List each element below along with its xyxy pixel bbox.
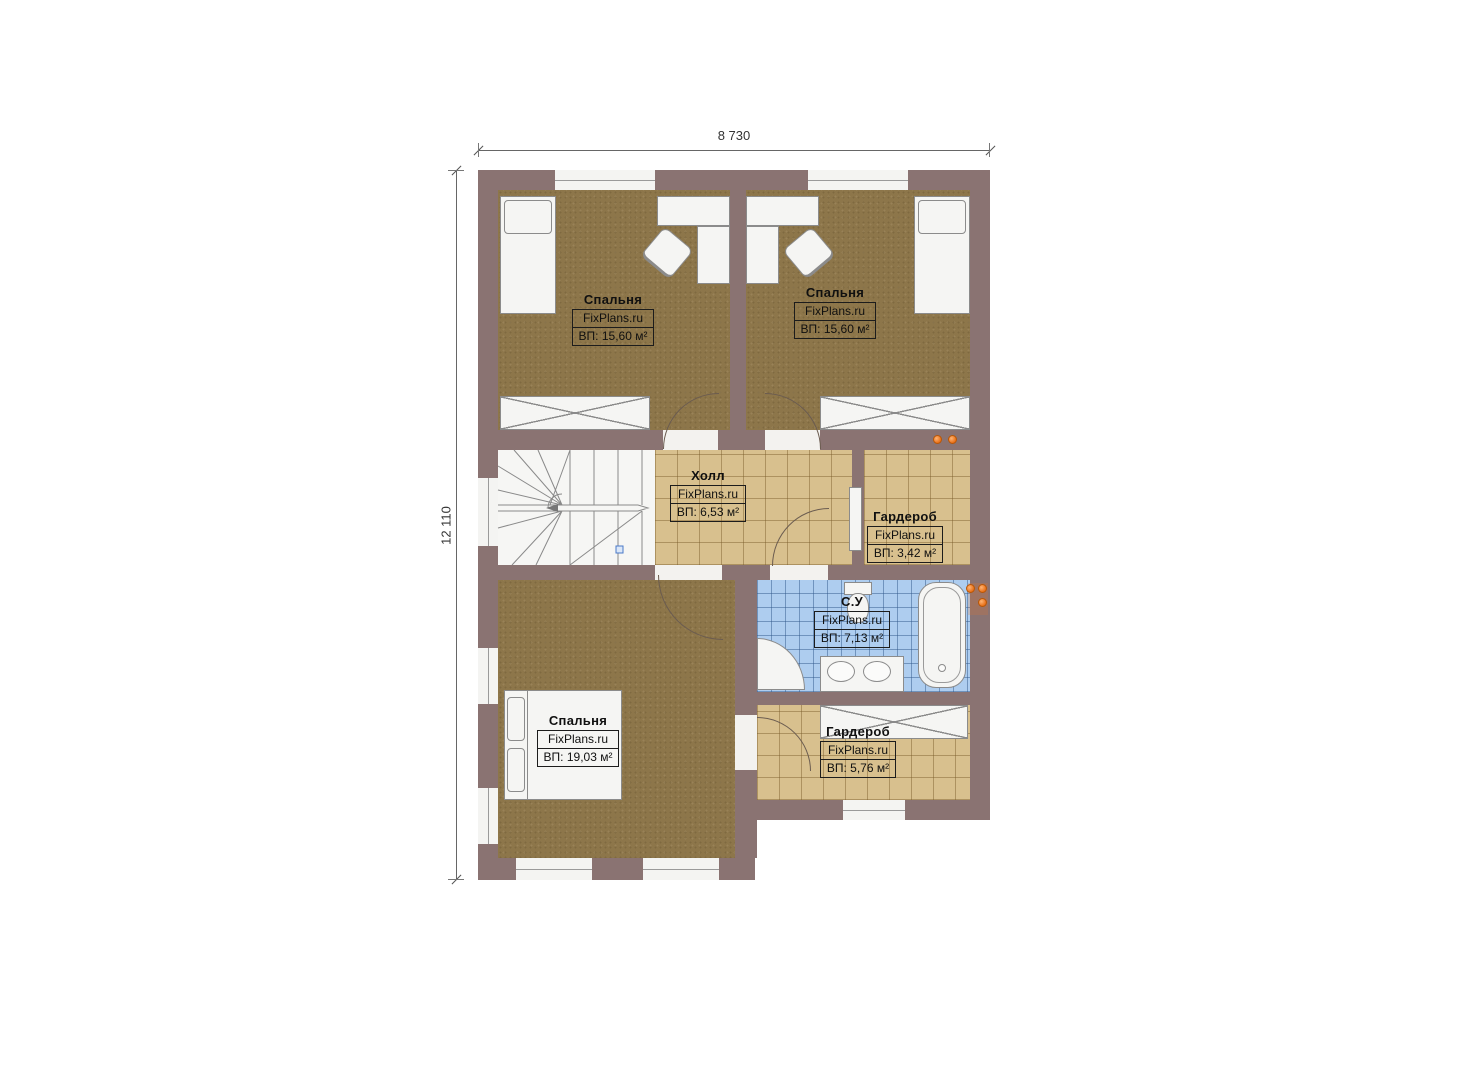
wardrobe-unit xyxy=(820,396,970,430)
door-opening-wardrobe-lower xyxy=(735,715,757,770)
watermark: FixPlans.ru xyxy=(538,731,619,748)
room-label-bedroom-top-right: Спальня FixPlans.ru ВП: 15,60 м² xyxy=(773,285,897,339)
stairs xyxy=(498,450,655,565)
room-info-box: FixPlans.ru ВП: 5,76 м² xyxy=(820,741,896,778)
pillow xyxy=(504,200,552,234)
dimension-extension xyxy=(478,143,479,157)
room-area: ВП: 15,60 м² xyxy=(573,327,654,345)
room-area: ВП: 15,60 м² xyxy=(795,320,876,338)
room-area: ВП: 6,53 м² xyxy=(671,503,745,521)
floor-plan-canvas: 8 730 12 110 xyxy=(0,0,1474,1080)
room-info-box: FixPlans.ru ВП: 6,53 м² xyxy=(670,485,746,522)
wall-middle-horizontal xyxy=(478,430,990,450)
dimension-extension xyxy=(448,879,464,880)
room-label-bathroom: С.У FixPlans.ru ВП: 7,13 м² xyxy=(790,594,914,648)
watermark: FixPlans.ru xyxy=(671,486,745,503)
window xyxy=(555,170,655,190)
watermark: FixPlans.ru xyxy=(815,612,889,629)
sink xyxy=(863,661,891,682)
dimension-width-label: 8 730 xyxy=(478,128,990,143)
room-name: С.У xyxy=(841,594,863,609)
room-info-box: FixPlans.ru ВП: 19,03 м² xyxy=(537,730,620,767)
radiator-dot xyxy=(933,435,942,444)
window xyxy=(808,170,908,190)
room-label-hall: Холл FixPlans.ru ВП: 6,53 м² xyxy=(646,468,770,522)
radiator-dot xyxy=(948,435,957,444)
window xyxy=(478,648,498,704)
watermark: FixPlans.ru xyxy=(868,527,942,544)
window xyxy=(643,858,719,880)
wall-bath-wardrobe-divider xyxy=(757,692,970,705)
room-name: Спальня xyxy=(549,713,607,728)
radiator-dot xyxy=(966,584,975,593)
room-label-wardrobe-lower: Гардероб FixPlans.ru ВП: 5,76 м² xyxy=(796,724,920,778)
watermark: FixPlans.ru xyxy=(795,303,876,320)
wall-right xyxy=(970,170,990,820)
dimension-extension xyxy=(448,170,464,171)
room-name: Гардероб xyxy=(826,724,890,739)
window xyxy=(478,788,498,844)
wardrobe-unit xyxy=(500,396,650,430)
dimension-height-label: 12 110 xyxy=(439,486,454,566)
room-name: Спальня xyxy=(806,285,864,300)
room-name: Спальня xyxy=(584,292,642,307)
dimension-width-line xyxy=(478,150,990,151)
room-label-bedroom-top-left: Спальня FixPlans.ru ВП: 15,60 м² xyxy=(551,292,675,346)
room-area: ВП: 19,03 м² xyxy=(538,748,619,766)
sink xyxy=(827,661,855,682)
room-name: Холл xyxy=(691,468,725,483)
room-info-box: FixPlans.ru ВП: 3,42 м² xyxy=(867,526,943,563)
room-name: Гардероб xyxy=(873,509,937,524)
pillow xyxy=(918,200,966,234)
bathtub-drain xyxy=(938,664,946,672)
dimension-extension xyxy=(989,143,990,157)
room-label-bedroom-master: Спальня FixPlans.ru ВП: 19,03 м² xyxy=(516,713,640,767)
desk xyxy=(746,226,779,284)
radiator-dot xyxy=(978,584,987,593)
room-info-box: FixPlans.ru ВП: 15,60 м² xyxy=(572,309,655,346)
desk xyxy=(697,226,730,284)
watermark: FixPlans.ru xyxy=(821,742,895,759)
window xyxy=(478,478,498,546)
window xyxy=(516,858,592,880)
radiator-dot xyxy=(978,598,987,607)
stairs-marker xyxy=(616,546,623,553)
wall-bedrooms-divider xyxy=(730,190,746,430)
room-label-wardrobe-upper: Гардероб FixPlans.ru ВП: 3,42 м² xyxy=(843,509,967,563)
door-opening-bathroom xyxy=(770,565,828,580)
desk xyxy=(746,196,819,226)
room-area: ВП: 5,76 м² xyxy=(821,759,895,777)
bathtub xyxy=(918,582,966,688)
wall-lower-horizontal xyxy=(498,565,970,580)
room-info-box: FixPlans.ru ВП: 15,60 м² xyxy=(794,302,877,339)
watermark: FixPlans.ru xyxy=(573,310,654,327)
window xyxy=(843,800,905,820)
dimension-height-line xyxy=(456,170,457,880)
room-info-box: FixPlans.ru ВП: 7,13 м² xyxy=(814,611,890,648)
room-area: ВП: 3,42 м² xyxy=(868,544,942,562)
room-area: ВП: 7,13 м² xyxy=(815,629,889,647)
desk xyxy=(657,196,730,226)
